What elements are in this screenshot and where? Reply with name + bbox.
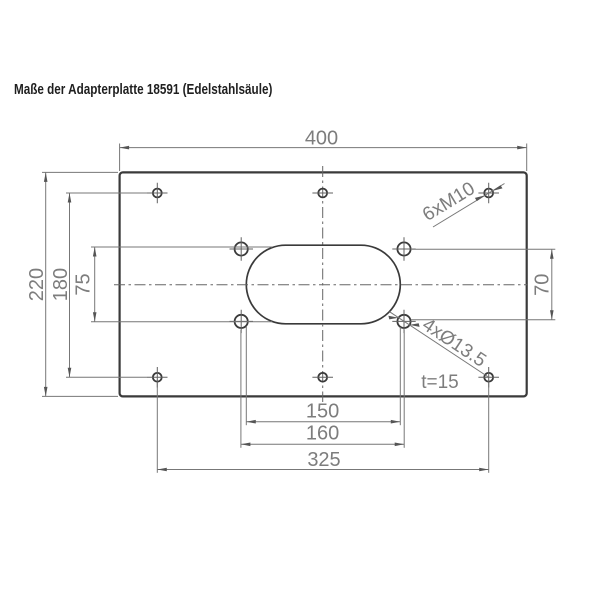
svg-text:220: 220: [26, 268, 48, 301]
svg-text:150: 150: [306, 401, 339, 423]
svg-text:160: 160: [306, 422, 339, 444]
svg-text:t=15: t=15: [421, 372, 459, 393]
svg-text:4xØ13.5: 4xØ13.5: [418, 314, 489, 371]
svg-text:75: 75: [72, 273, 94, 295]
svg-text:325: 325: [307, 449, 340, 471]
svg-text:70: 70: [532, 274, 554, 296]
svg-text:6xM10: 6xM10: [419, 178, 479, 226]
svg-text:180: 180: [50, 268, 72, 301]
svg-text:400: 400: [305, 127, 338, 149]
